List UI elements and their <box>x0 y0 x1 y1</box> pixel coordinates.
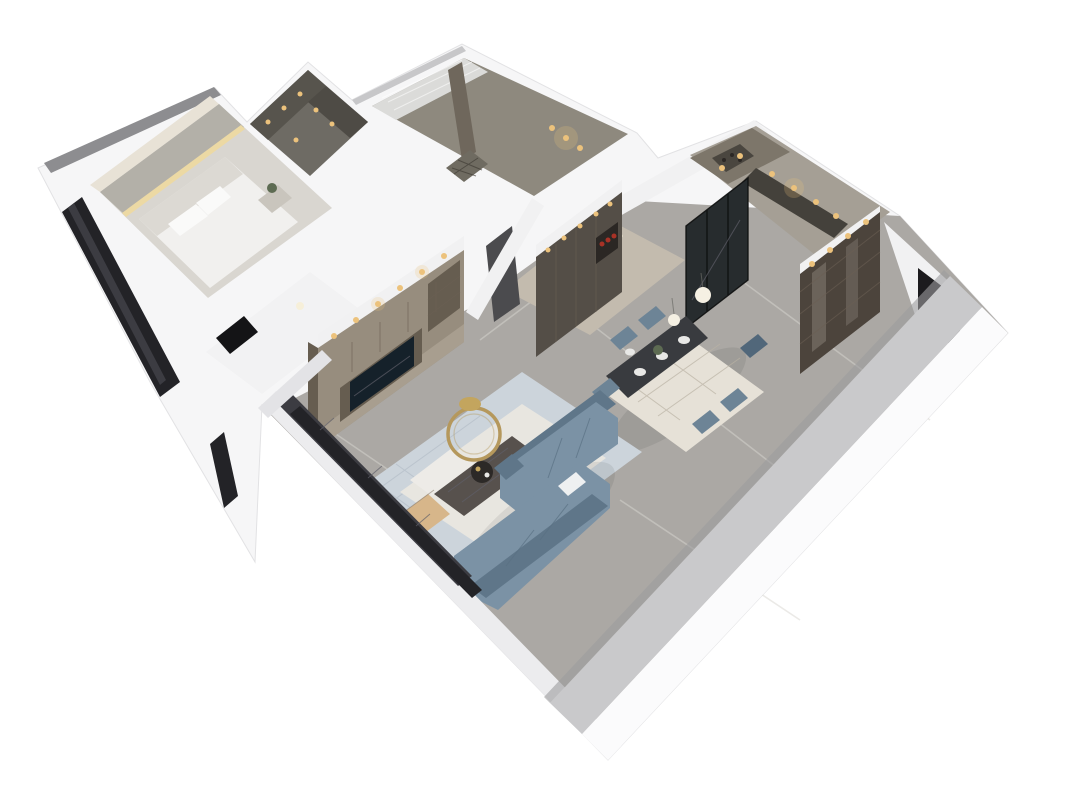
closet-downlight <box>330 122 335 127</box>
closet-downlight <box>266 120 271 125</box>
plate <box>634 368 646 376</box>
cabinet-glass-shine <box>812 262 826 352</box>
coffee-table-tray <box>471 461 493 483</box>
pendant-globe <box>668 314 680 326</box>
cabinet-spotlight <box>845 233 851 239</box>
kitchen-downlight <box>813 199 819 205</box>
floorplan-render: 3D dollhouse cutaway render of an apartm… <box>0 0 1080 809</box>
closet-downlight <box>294 138 299 143</box>
tv-spotlight <box>441 253 447 259</box>
tv-spotlight <box>397 285 403 291</box>
niche-red-object <box>606 238 611 243</box>
sideboard-spotlight <box>608 202 613 207</box>
tray-decor <box>476 467 481 472</box>
closet-downlight <box>282 106 287 111</box>
tray-decor <box>485 473 490 478</box>
niche-red-object <box>612 234 617 239</box>
kitchen-downlight <box>833 213 839 219</box>
render-canvas: 3D dollhouse cutaway render of an apartm… <box>0 0 1080 809</box>
sideboard-spotlight <box>562 236 567 241</box>
cabinet-spotlight <box>827 247 833 253</box>
gold-dish <box>459 397 481 411</box>
cabinet-spotlight <box>863 219 869 225</box>
tv-spotlight <box>353 317 359 323</box>
kitchen-downlight <box>719 165 725 171</box>
niche-downlight <box>563 135 569 141</box>
niche-downlight <box>577 145 583 151</box>
sideboard-spotlight <box>546 248 551 253</box>
closet-downlight <box>298 92 303 97</box>
cabinet-spotlight <box>809 261 815 267</box>
nightstand-plant <box>267 183 277 193</box>
tv-spotlight <box>375 301 381 307</box>
centerpiece-plant <box>653 345 663 355</box>
niche-red-object <box>600 242 605 247</box>
sideboard-spotlight <box>578 224 583 229</box>
headboard-curve <box>176 189 190 203</box>
wine-bottle <box>730 153 734 157</box>
pendant-globe <box>695 287 711 303</box>
kitchen-downlight <box>791 185 797 191</box>
ceiling-light <box>296 302 304 310</box>
closet-downlight <box>314 108 319 113</box>
wine-bottle <box>722 158 726 162</box>
tv-spotlight <box>331 333 337 339</box>
headboard-curve <box>199 172 213 186</box>
kitchen-downlight <box>769 171 775 177</box>
tv-spotlight <box>419 269 425 275</box>
niche-downlight <box>549 125 555 131</box>
plate <box>678 336 690 344</box>
kitchen-downlight <box>737 153 743 159</box>
plate <box>625 349 635 356</box>
sideboard-spotlight <box>594 212 599 217</box>
